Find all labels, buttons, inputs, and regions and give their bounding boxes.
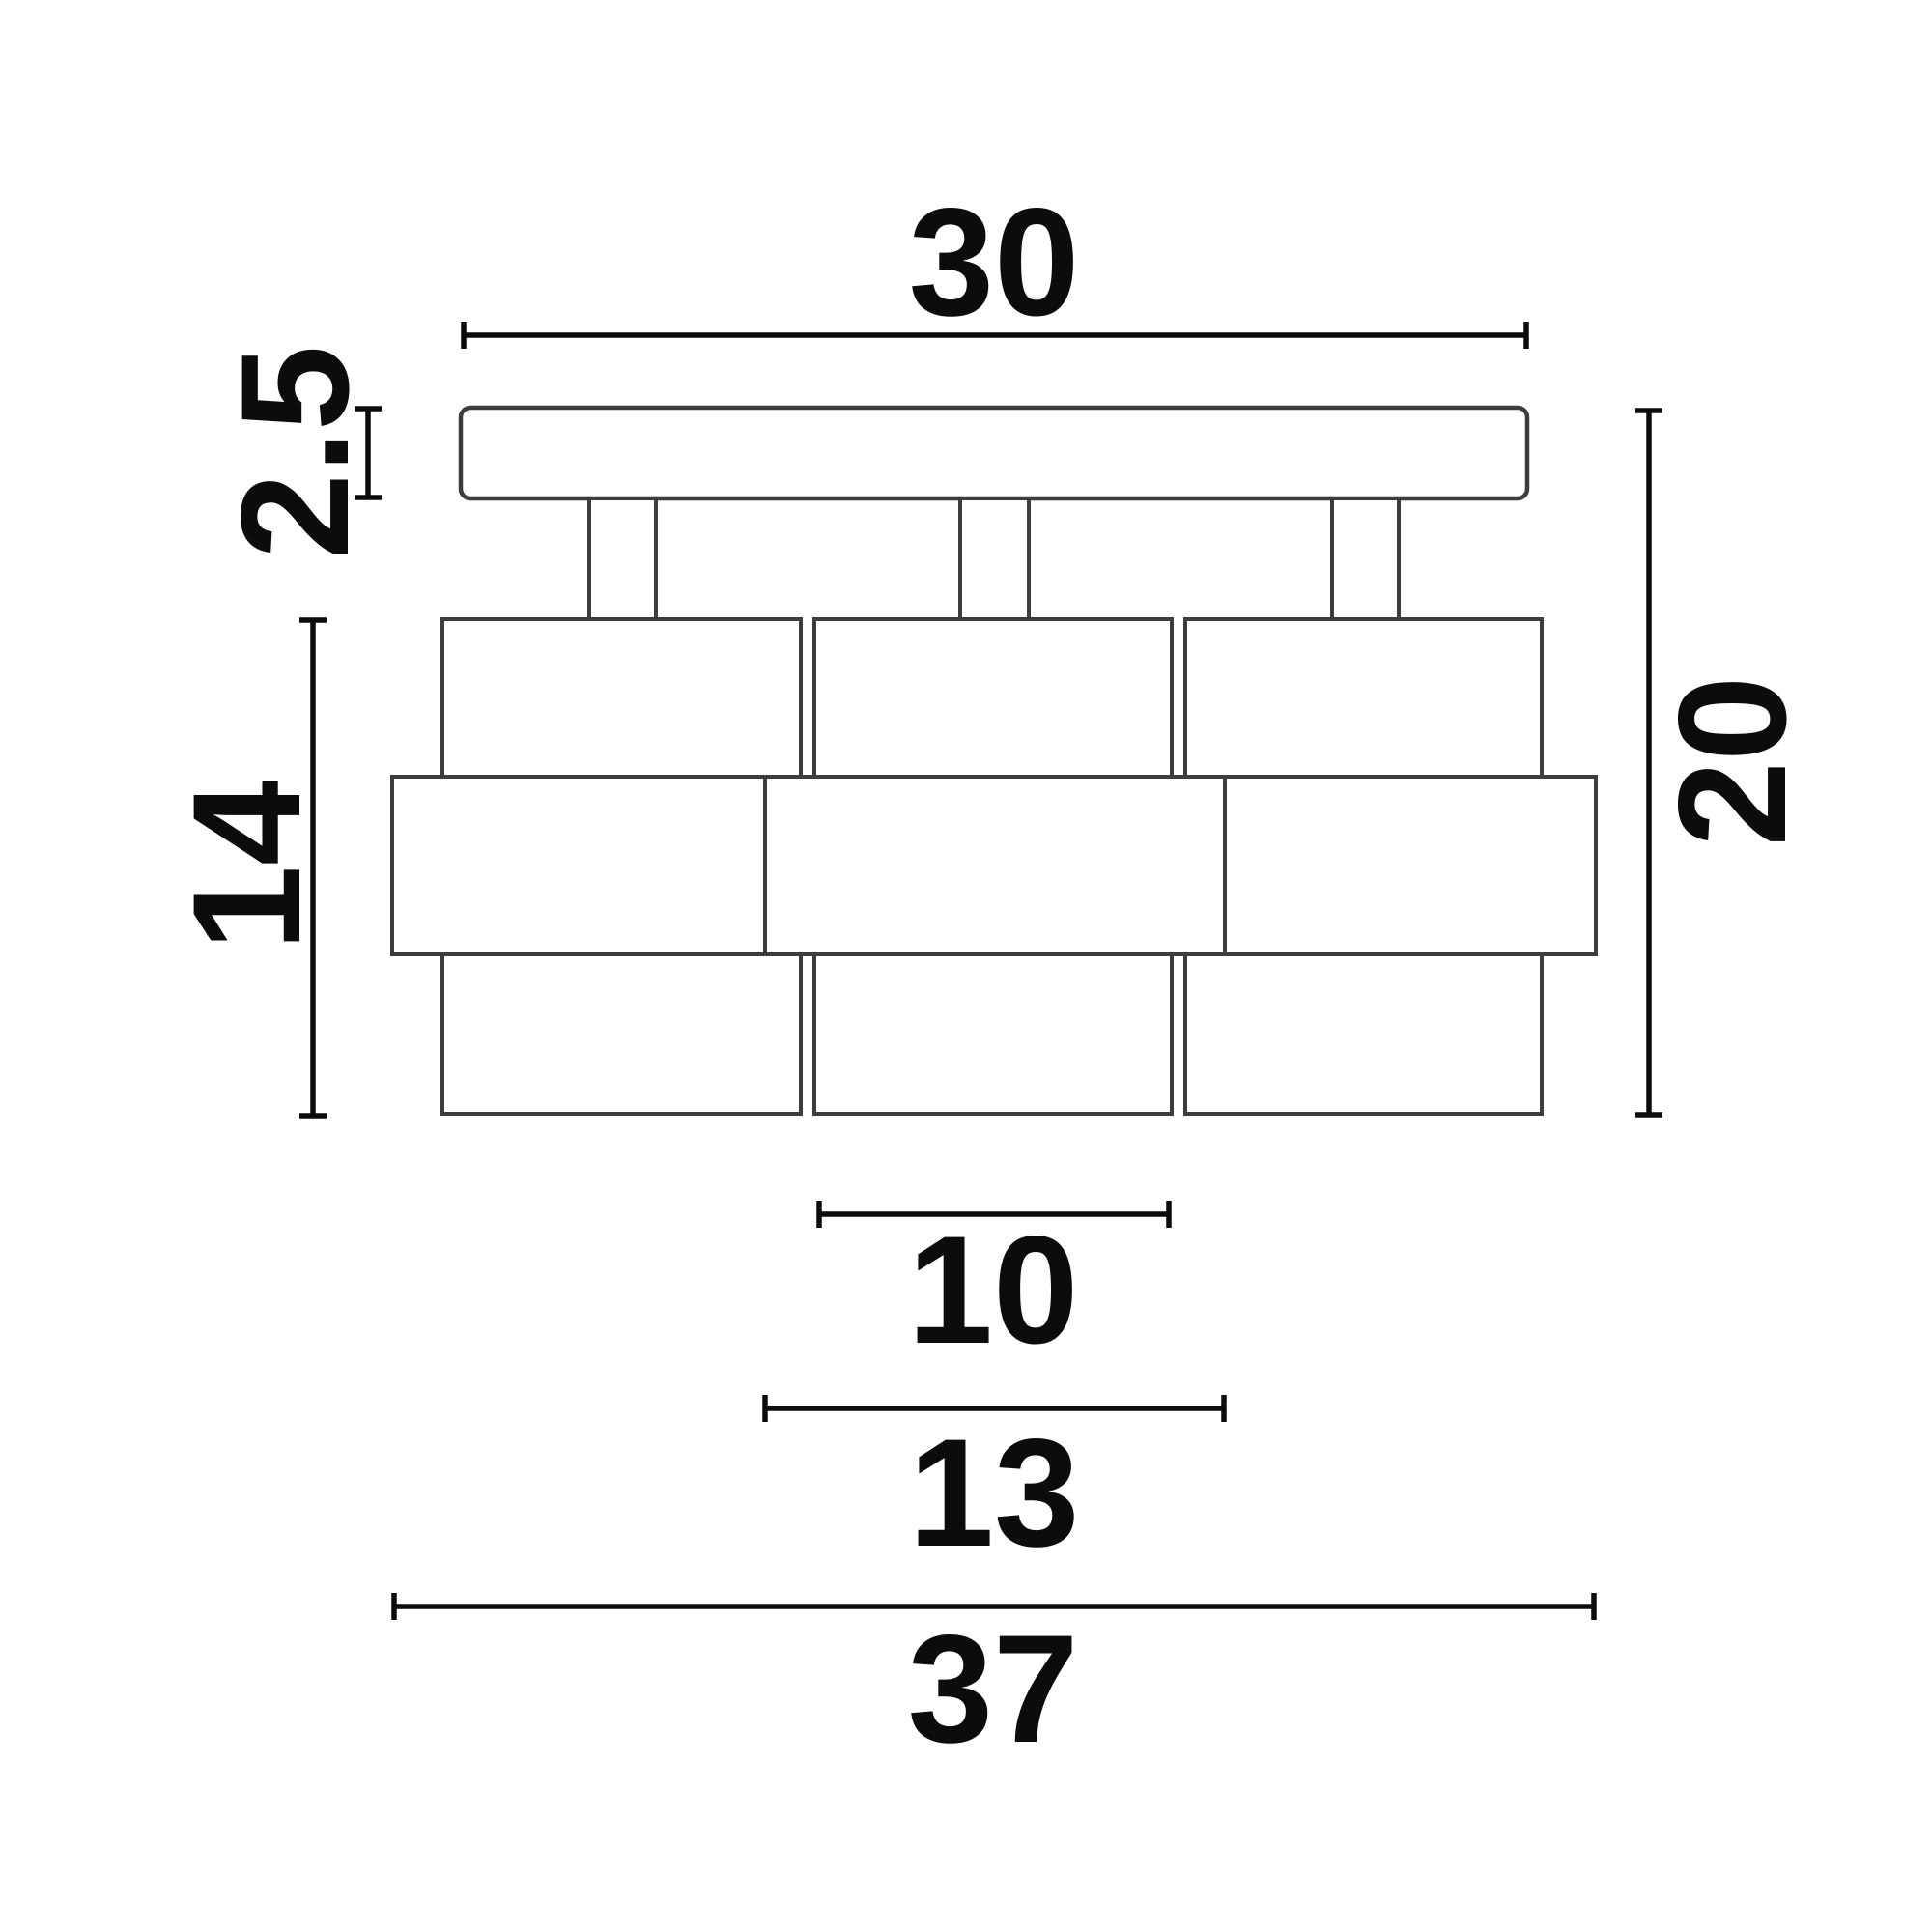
svg-text:20: 20 (1646, 676, 1818, 847)
svg-text:2.5: 2.5 (209, 345, 381, 558)
svg-text:30: 30 (909, 176, 1080, 348)
svg-text:13: 13 (909, 1406, 1080, 1578)
svg-text:37: 37 (908, 1603, 1079, 1775)
svg-text:14: 14 (160, 781, 332, 952)
svg-text:10: 10 (908, 1204, 1079, 1376)
